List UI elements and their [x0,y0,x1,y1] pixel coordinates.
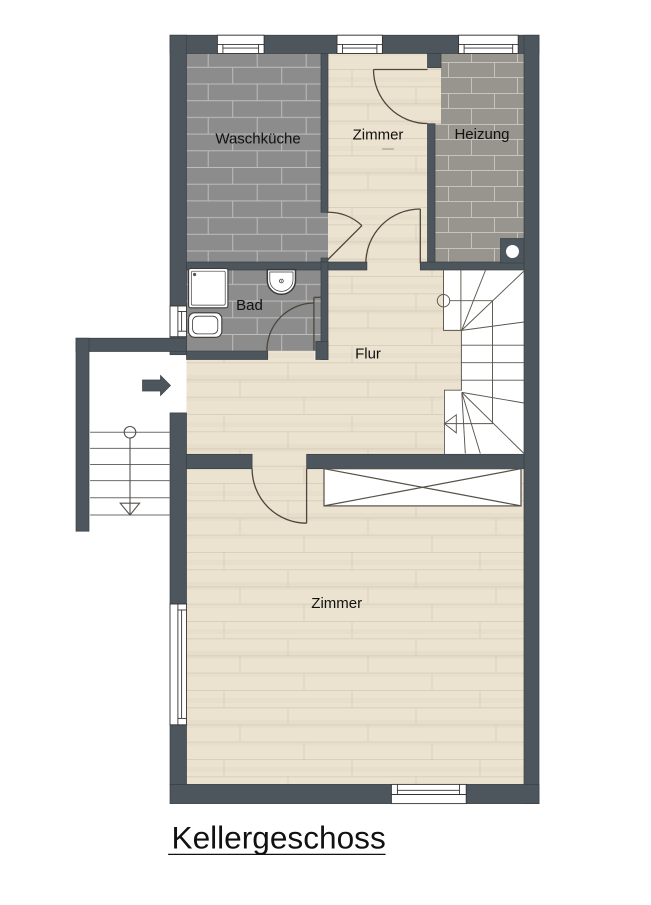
svg-text:Kellergeschoss: Kellergeschoss [172,820,386,856]
svg-text:Flur: Flur [355,345,381,362]
svg-text:Zimmer: Zimmer [311,595,362,612]
svg-text:Waschküche: Waschküche [215,131,300,148]
svg-text:Bad: Bad [236,297,263,314]
svg-text:Zimmer: Zimmer [353,127,404,144]
svg-text:Heizung: Heizung [454,126,509,143]
